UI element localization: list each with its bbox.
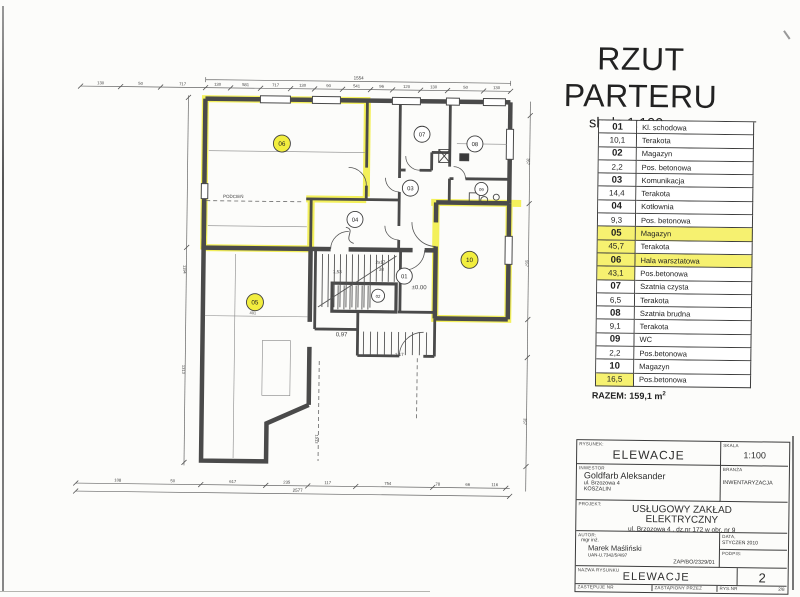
plan-annotation: 96: [379, 84, 384, 89]
plan-annotation: 90: [326, 83, 331, 88]
dimension-lines: [73, 76, 533, 500]
plan-annotation: 754: [384, 481, 392, 486]
date-label: DATA,: [722, 534, 736, 539]
plan-annotation: 1,53: [333, 269, 342, 274]
author-license: UAN-U.7342/5/4/97: [588, 552, 719, 559]
scale-label: SKALA: [723, 443, 739, 448]
plan-annotation: 235: [283, 480, 291, 485]
legend-room-number: 43,1: [597, 267, 635, 281]
rysnr-label: RYS.NR: [719, 586, 737, 591]
legend-room-number: 10,1: [599, 134, 637, 148]
legend-total-text: RAZEM: 159,1 m: [592, 390, 663, 401]
plan-annotation: 50: [170, 478, 175, 483]
room-number-06: 06: [278, 141, 286, 148]
scan-edge-bottom: [0, 591, 430, 592]
plan-annotation: 1513: [314, 435, 319, 445]
room-number-03: 03: [407, 186, 414, 192]
legend-room-number: 6,5: [597, 293, 635, 307]
drawing-name-label: NAZWA RYSUNKU: [578, 567, 620, 573]
drawing-label: RYSUNEK:: [579, 441, 604, 446]
titleblock-project-cell: PROJEKT: USŁUGOWY ZAKŁAD ELEKTRYCZNY ul.…: [576, 500, 787, 534]
branch-label: BRANŻA: [723, 467, 743, 472]
room-number-09: 09: [479, 187, 484, 192]
replaced-by-label: ZASTĄPIONY PRZEZ: [654, 585, 702, 591]
legend-room-name: Terakota: [635, 320, 752, 335]
plan-annotation: PODCIEŃ: [223, 193, 244, 199]
stairs: [317, 227, 428, 355]
legend-room-name: Terakota: [637, 134, 754, 149]
plan-annotation: 2577: [293, 488, 304, 493]
titleblock-investor-cell: INWESTOR Goldfarb Aleksander ul. Brzozow…: [577, 464, 721, 502]
branch-value: INWENTARYZACJA: [721, 480, 788, 487]
legend-room-number: 02: [599, 147, 637, 161]
plan-annotation: 401: [249, 310, 257, 315]
investor-label: INWESTOR: [579, 465, 605, 470]
floor-plan: 01020304050607080910 PODCIEŃ±0.000,972x1…: [7, 40, 578, 517]
plan-annotation: 357: [526, 158, 531, 166]
legend-room-number: 2,2: [596, 346, 634, 360]
legend-room-number: 01: [599, 120, 637, 134]
plan-annotation: 557: [524, 260, 529, 268]
plan-annotation: 1,17: [395, 352, 404, 357]
room-number-10: 10: [466, 257, 474, 264]
plan-annotation: ±0.00: [412, 285, 428, 291]
plan-annotation: 2x17: [376, 260, 386, 265]
legend-room-name: Pos. betonowa: [637, 161, 754, 176]
scan-edge-right: [792, 436, 794, 590]
legend-room-name: Magazyn: [637, 147, 754, 162]
titleblock-sheet-cell: 2: [738, 568, 787, 587]
legend-room-name: Kl. schodowa: [637, 121, 754, 136]
legend-room-number: 06: [597, 253, 635, 267]
door-swings: [329, 155, 465, 357]
legend-room-number: 07: [597, 280, 635, 294]
room-number-07: 07: [419, 132, 426, 138]
legend-room-number: 2,2: [599, 160, 637, 174]
legend-room-name: Terakota: [635, 294, 752, 309]
legend-total: RAZEM: 159,1 m2: [592, 390, 666, 401]
plan-annotation: 717: [272, 82, 280, 87]
sheet-number: 2: [738, 570, 787, 586]
plan-annotation: 617: [229, 479, 237, 484]
room-number-01: 01: [401, 274, 408, 280]
plan-annotation: 116: [491, 482, 498, 487]
legend-row: 16,5Pos.betonowa: [596, 373, 753, 388]
legend-room-name: Pos.betonowa: [634, 347, 751, 362]
plan-annotation: 717: [179, 81, 187, 86]
plan-annotation: 130: [430, 84, 438, 89]
titleblock: RYSUNEK: ELEWACJE SKALA 1:100 INWESTOR G…: [574, 439, 790, 595]
legend-room-number: 05: [598, 227, 636, 241]
plan-annotation: 130: [214, 82, 222, 87]
drawing-value: ELEWACJE: [577, 447, 720, 463]
plan-annotation: 1313: [181, 365, 186, 375]
scanned-drawing-page: { "title": {"heading": "RZUT PARTERU", "…: [0, 0, 800, 597]
titleblock-replaces-cell: ZASTĘPUJE NR: [575, 584, 652, 591]
room-legend-table: 01Kl. schodowa10,1Terakota02Magazyn2,2Po…: [595, 119, 756, 388]
plan-annotation: 581: [242, 82, 250, 87]
plan-annotation: 120: [403, 84, 411, 89]
plan-annotation: 130: [493, 85, 501, 90]
scale-value: 1:100: [721, 450, 788, 461]
legend-room-number: 16,5: [596, 373, 634, 387]
titleblock-drawing-cell: RYSUNEK: ELEWACJE: [577, 440, 721, 466]
plan-annotation: 0,97: [336, 332, 348, 338]
legend-room-number: 04: [598, 200, 636, 214]
plan-annotation: 78: [435, 481, 440, 486]
plan-annotation: 50: [138, 81, 143, 86]
plan-annotation: 1194: [182, 265, 187, 274]
plan-annotation: 50: [463, 85, 468, 90]
legend-room-number: 45,7: [598, 240, 636, 254]
plan-annotation: 66: [465, 482, 470, 487]
legend-room-name: Pos.betonowa: [634, 374, 751, 389]
project-label: PROJEKT:: [578, 501, 601, 506]
legend-room-number: 10: [596, 360, 634, 374]
legend-room-number: 08: [597, 307, 635, 321]
plan-annotation: 130: [97, 80, 105, 85]
titleblock-branch-cell: BRANŻA INWENTARYZACJA: [721, 466, 788, 503]
legend-room-name: Pos.betonowa: [635, 267, 752, 282]
room-number-04: 04: [352, 218, 359, 224]
room-number-02: 02: [376, 294, 381, 299]
legend-total-sup: 2: [662, 391, 665, 397]
plan-annotation: 38: [379, 267, 385, 272]
investor-address2: KOSZALIN: [584, 486, 720, 494]
legend-room-name: Szatnia brudna: [635, 307, 752, 322]
legend-room-name: Szatnia czysta: [635, 280, 752, 295]
room-number-05: 05: [251, 299, 259, 306]
titleblock-scale-cell: SKALA 1:100: [721, 442, 788, 467]
titleblock-signature-cell: PODPIS:: [720, 550, 787, 569]
scan-content: RZUT PARTERU skala 1:100: [0, 0, 800, 597]
legend-room-name: Magazyn: [634, 360, 751, 375]
legend-room-number: 09: [596, 333, 634, 347]
room-number-08: 08: [472, 142, 479, 148]
titleblock-replaced-cell: ZASTĄPIONY PRZEZ: [652, 585, 717, 592]
plan-annotation: 1554: [354, 75, 365, 80]
legend-room-name: WC: [634, 334, 751, 349]
date-value: STYCZEŃ 2010: [720, 540, 787, 547]
legend-room-number: 9,3: [598, 213, 636, 227]
plan-annotation: 108: [114, 478, 122, 483]
fixtures: [438, 149, 500, 203]
rysnr-value: 2/8: [778, 587, 784, 592]
plan-annotation: 357: [522, 418, 527, 426]
signature-label: PODPIS:: [722, 551, 742, 556]
legend-room-number: 14,4: [598, 187, 636, 201]
titleblock-date-cell: DATA, STYCZEŃ 2010: [720, 533, 787, 551]
legend-room-number: 03: [598, 174, 636, 188]
titleblock-name-cell: NAZWA RYSUNKU ELEWACJE: [576, 566, 738, 586]
plan-annotation: 541: [353, 83, 361, 88]
legend-room-number: 9,1: [597, 320, 635, 334]
author-label: AUTOR:: [578, 532, 596, 537]
replaces-label: ZASTĘPUJE NR: [577, 584, 613, 589]
plan-annotation: 117: [324, 480, 331, 485]
scan-edge-left: [2, 6, 4, 592]
legend-room-name: Komunikacja: [636, 174, 753, 189]
titleblock-rysnr-cell: RYS.NR 2/8: [717, 586, 786, 593]
titleblock-author-cell: AUTOR: mgr inż. Marek Maśliński UAN-U.73…: [576, 531, 720, 568]
author-ref: ZAP/BO/2329/01: [673, 559, 715, 566]
plan-annotation: 130: [299, 83, 307, 88]
